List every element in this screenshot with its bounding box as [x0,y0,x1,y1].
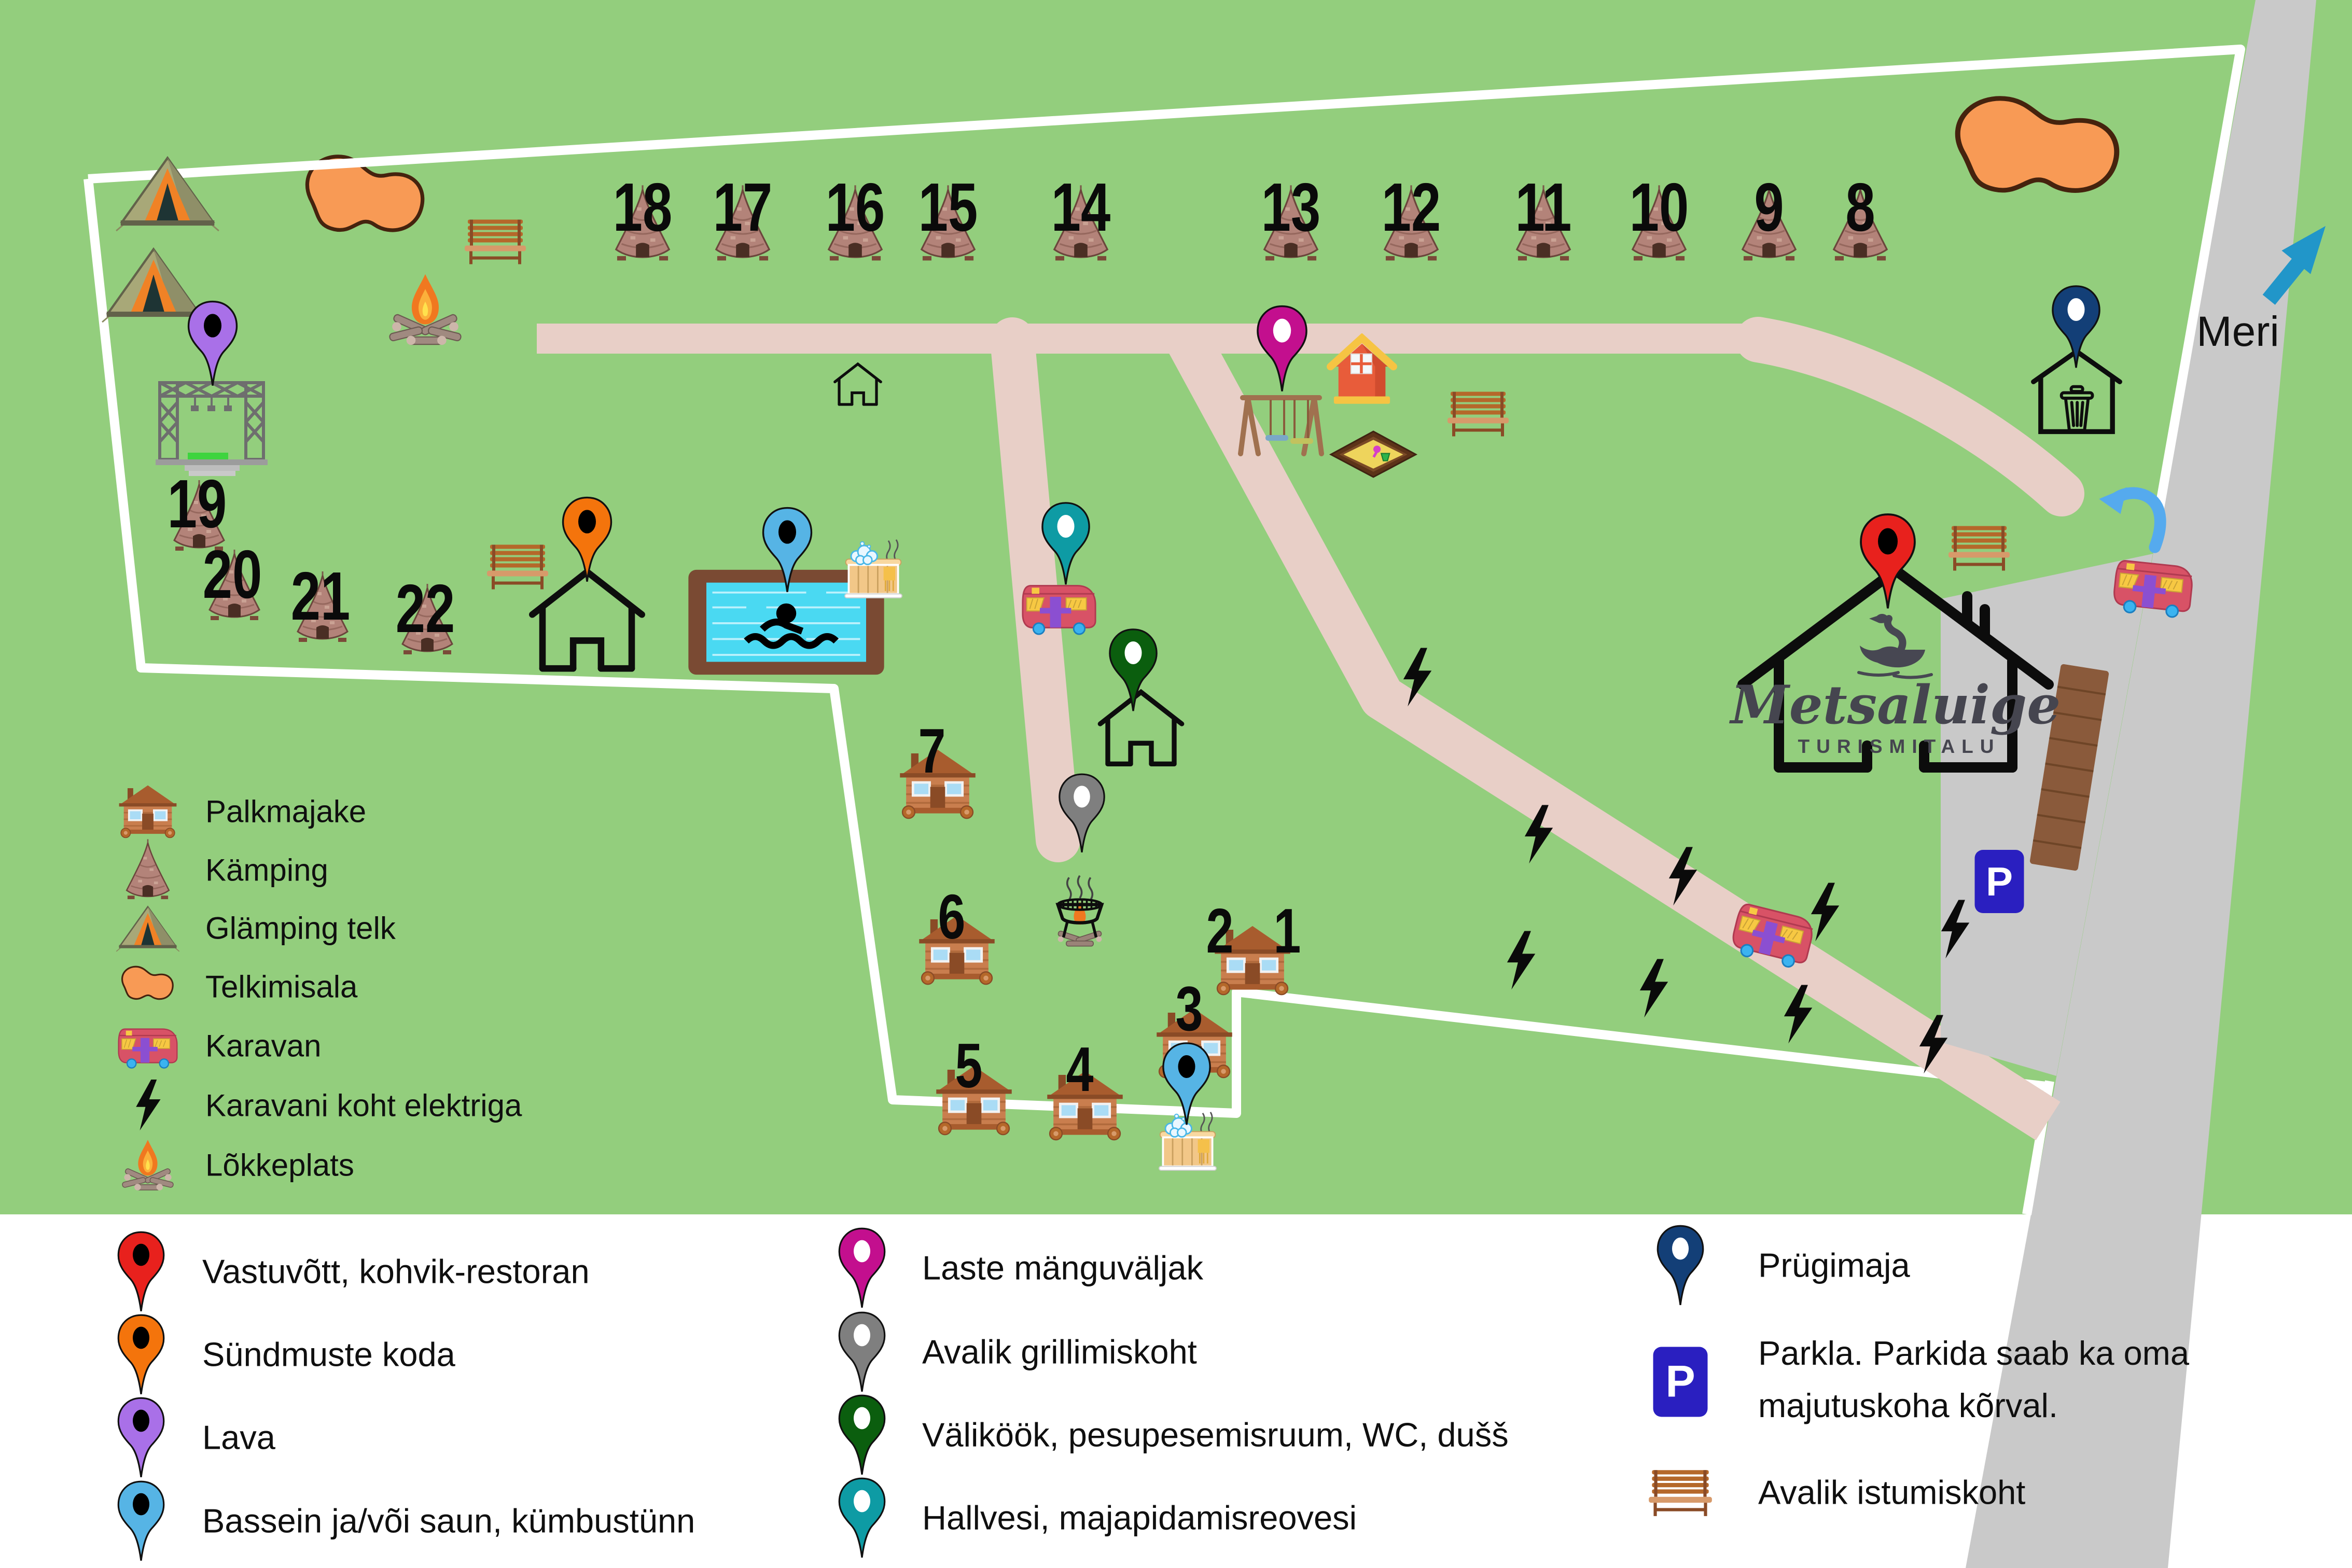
stage-icon [154,376,269,476]
reception-pin [1854,512,1922,610]
legend-pin-pool [113,1479,169,1562]
map-legend-label: Karavan [205,1028,321,1064]
site-number: 16 [826,173,885,242]
grill-pin [1054,772,1110,854]
site-number: 9 [1754,173,1784,242]
legend-label: Parkla. Parkida saab ka oma majutuskoha … [1758,1327,2235,1432]
glamping-tent-icon [114,903,182,954]
legend-label: Lava [202,1418,275,1457]
log-cabin-icon [117,785,178,839]
hot-tub-icon [837,537,910,600]
legend-pin-stage [113,1396,169,1479]
legend-pin-grill [834,1310,890,1393]
lightning-icon [1518,805,1559,865]
tent-area-icon [115,960,181,1013]
site-number: 7 [918,719,946,782]
map-legend-label: Lõkkeplats [205,1147,354,1183]
greywater-pin [1037,501,1095,586]
legend-label: Vastuvõtt, kohvik-restoran [202,1252,590,1291]
lightning-icon [1912,1015,1954,1075]
campfire-icon [383,270,468,350]
sea-arrow-icon [2252,221,2330,306]
legend-pin-playground [834,1226,890,1309]
sandbox-icon [1327,429,1419,479]
swing-icon [1234,390,1328,458]
playhouse-icon [1319,333,1405,405]
legend-pin-kitchen [834,1393,890,1476]
campsite-map: 18 17 16 15 14 13 12 11 10 9 8 19 20 21 … [0,0,2352,1568]
site-number: 10 [1630,173,1689,242]
caravan-icon [115,1023,180,1069]
site-number: 22 [396,575,455,643]
legend-label: Prügimaja [1758,1246,1910,1285]
lightning-icon [1396,648,1438,708]
logo-title: Metsaluige [1731,674,2061,736]
caravan-icon [2106,551,2200,621]
site-number: 1 [1274,899,1301,962]
site-number: 8 [1845,173,1875,242]
site-number: 2 [1206,899,1234,962]
parking-sign: P [1975,850,2024,913]
parking-sign: P [1653,1347,1708,1417]
stage-pin [183,299,243,387]
lightning-icon [1633,959,1674,1019]
legend-label: Sündmuste koda [202,1335,455,1374]
house-outline-icon [832,361,883,408]
teepee-icon [121,839,174,901]
site-number: 6 [938,885,966,948]
site-number: 20 [203,540,262,609]
site-number: 18 [613,173,673,242]
legend-pin-reception [113,1230,169,1313]
map-legend-label: Telkimisala [205,969,357,1005]
map-legend-label: Palkmajake [205,794,366,830]
site-number: 19 [168,470,227,538]
map-legend-label: Karavani koht elektriga [205,1088,522,1124]
legend-pin-events [113,1313,169,1396]
legend-pin-trash [1652,1224,1708,1307]
lightning-icon [131,1080,165,1131]
pool-pin [758,506,817,594]
lightning-icon [1934,900,1975,960]
site-number: 12 [1382,173,1441,242]
logo-subtitle: TURISMITALU [1798,736,2001,758]
legend-label: Laste mänguväljak [922,1249,1203,1287]
lightning-icon [1500,931,1541,991]
legend-label: Hallvesi, majapidamisreovesi [922,1499,1357,1537]
sea-label: Meri [2196,307,2279,356]
site-number: 21 [291,562,351,631]
legend-label: Avalik grillimiskoht [922,1333,1197,1371]
entrance-arrow-icon [2086,467,2167,555]
site-number: 17 [713,173,773,242]
playground-pin [1251,304,1313,393]
legend-label: Väliköök, pesupesemisruum, WC, dušš [922,1416,1509,1454]
site-number: 5 [955,1034,983,1097]
site-number: 14 [1051,173,1111,242]
legend-label: Bassein ja/või saun, kümbustünn [202,1502,695,1541]
glamping-tent-icon [112,151,224,234]
lightning-icon [1777,985,1818,1045]
trash-pin [2047,284,2105,370]
lightning-icon [1662,847,1703,907]
grill-icon [1045,875,1115,954]
legend-pin-greywater [834,1476,890,1559]
site-number: 4 [1066,1038,1094,1101]
map-legend-label: Kämping [205,852,328,888]
bench-icon [461,217,531,266]
caravan-icon [1018,578,1100,636]
site-number: 11 [1515,173,1572,242]
site-number: 13 [1261,173,1321,242]
site-number: 15 [918,173,978,242]
campfire-icon [117,1137,178,1194]
kitchen-pin [1104,627,1162,713]
bench-icon [1645,1467,1716,1518]
site-number: 3 [1176,977,1203,1040]
map-legend-label: Glämping telk [205,911,396,946]
sauna-pin [1158,1041,1216,1127]
events-pin [558,495,617,583]
legend-label: Avalik istumiskoht [1758,1473,2025,1512]
bench-icon [1443,389,1513,438]
